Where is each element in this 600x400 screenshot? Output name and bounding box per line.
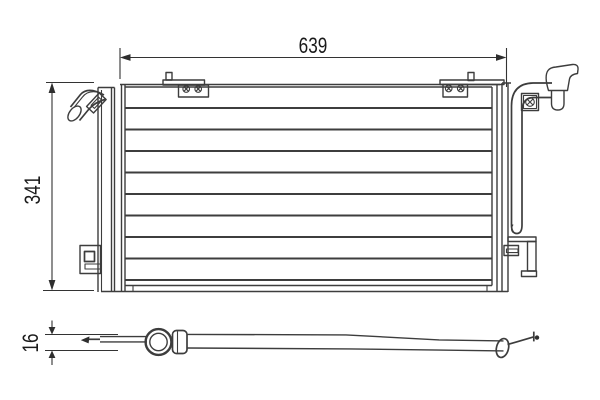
right-side-rail bbox=[502, 83, 511, 292]
side-inlet-arrow bbox=[81, 336, 100, 343]
lower-mounting-bracket-right bbox=[504, 237, 537, 277]
core-fins bbox=[125, 108, 492, 280]
diagram-canvas: 639 341 16 bbox=[0, 0, 600, 400]
condenser-core bbox=[101, 85, 508, 292]
service-port-fitting bbox=[546, 64, 578, 110]
mounting-bracket-left bbox=[163, 73, 209, 98]
screw-icon bbox=[526, 98, 535, 107]
dimension-width-label: 639 bbox=[290, 35, 337, 57]
mounting-bracket-right bbox=[440, 73, 504, 98]
side-pipe-ring bbox=[146, 329, 172, 355]
side-body-bar bbox=[187, 334, 504, 351]
dimension-thickness-label: 16 bbox=[20, 320, 42, 367]
condenser-drawing bbox=[0, 0, 600, 400]
side-pipe-clamp bbox=[173, 331, 188, 354]
inlet-pipe-opening bbox=[65, 104, 83, 124]
condenser-side-view bbox=[81, 329, 539, 359]
side-inlet-stub bbox=[100, 337, 147, 342]
side-end-fitting bbox=[494, 332, 539, 359]
dimension-thickness bbox=[45, 321, 118, 366]
screw-icon bbox=[445, 85, 464, 92]
condenser-front-view bbox=[65, 64, 578, 292]
bracket-pin bbox=[166, 73, 172, 81]
pipe-flange-block bbox=[522, 94, 539, 111]
dimension-height-label: 341 bbox=[22, 167, 44, 214]
